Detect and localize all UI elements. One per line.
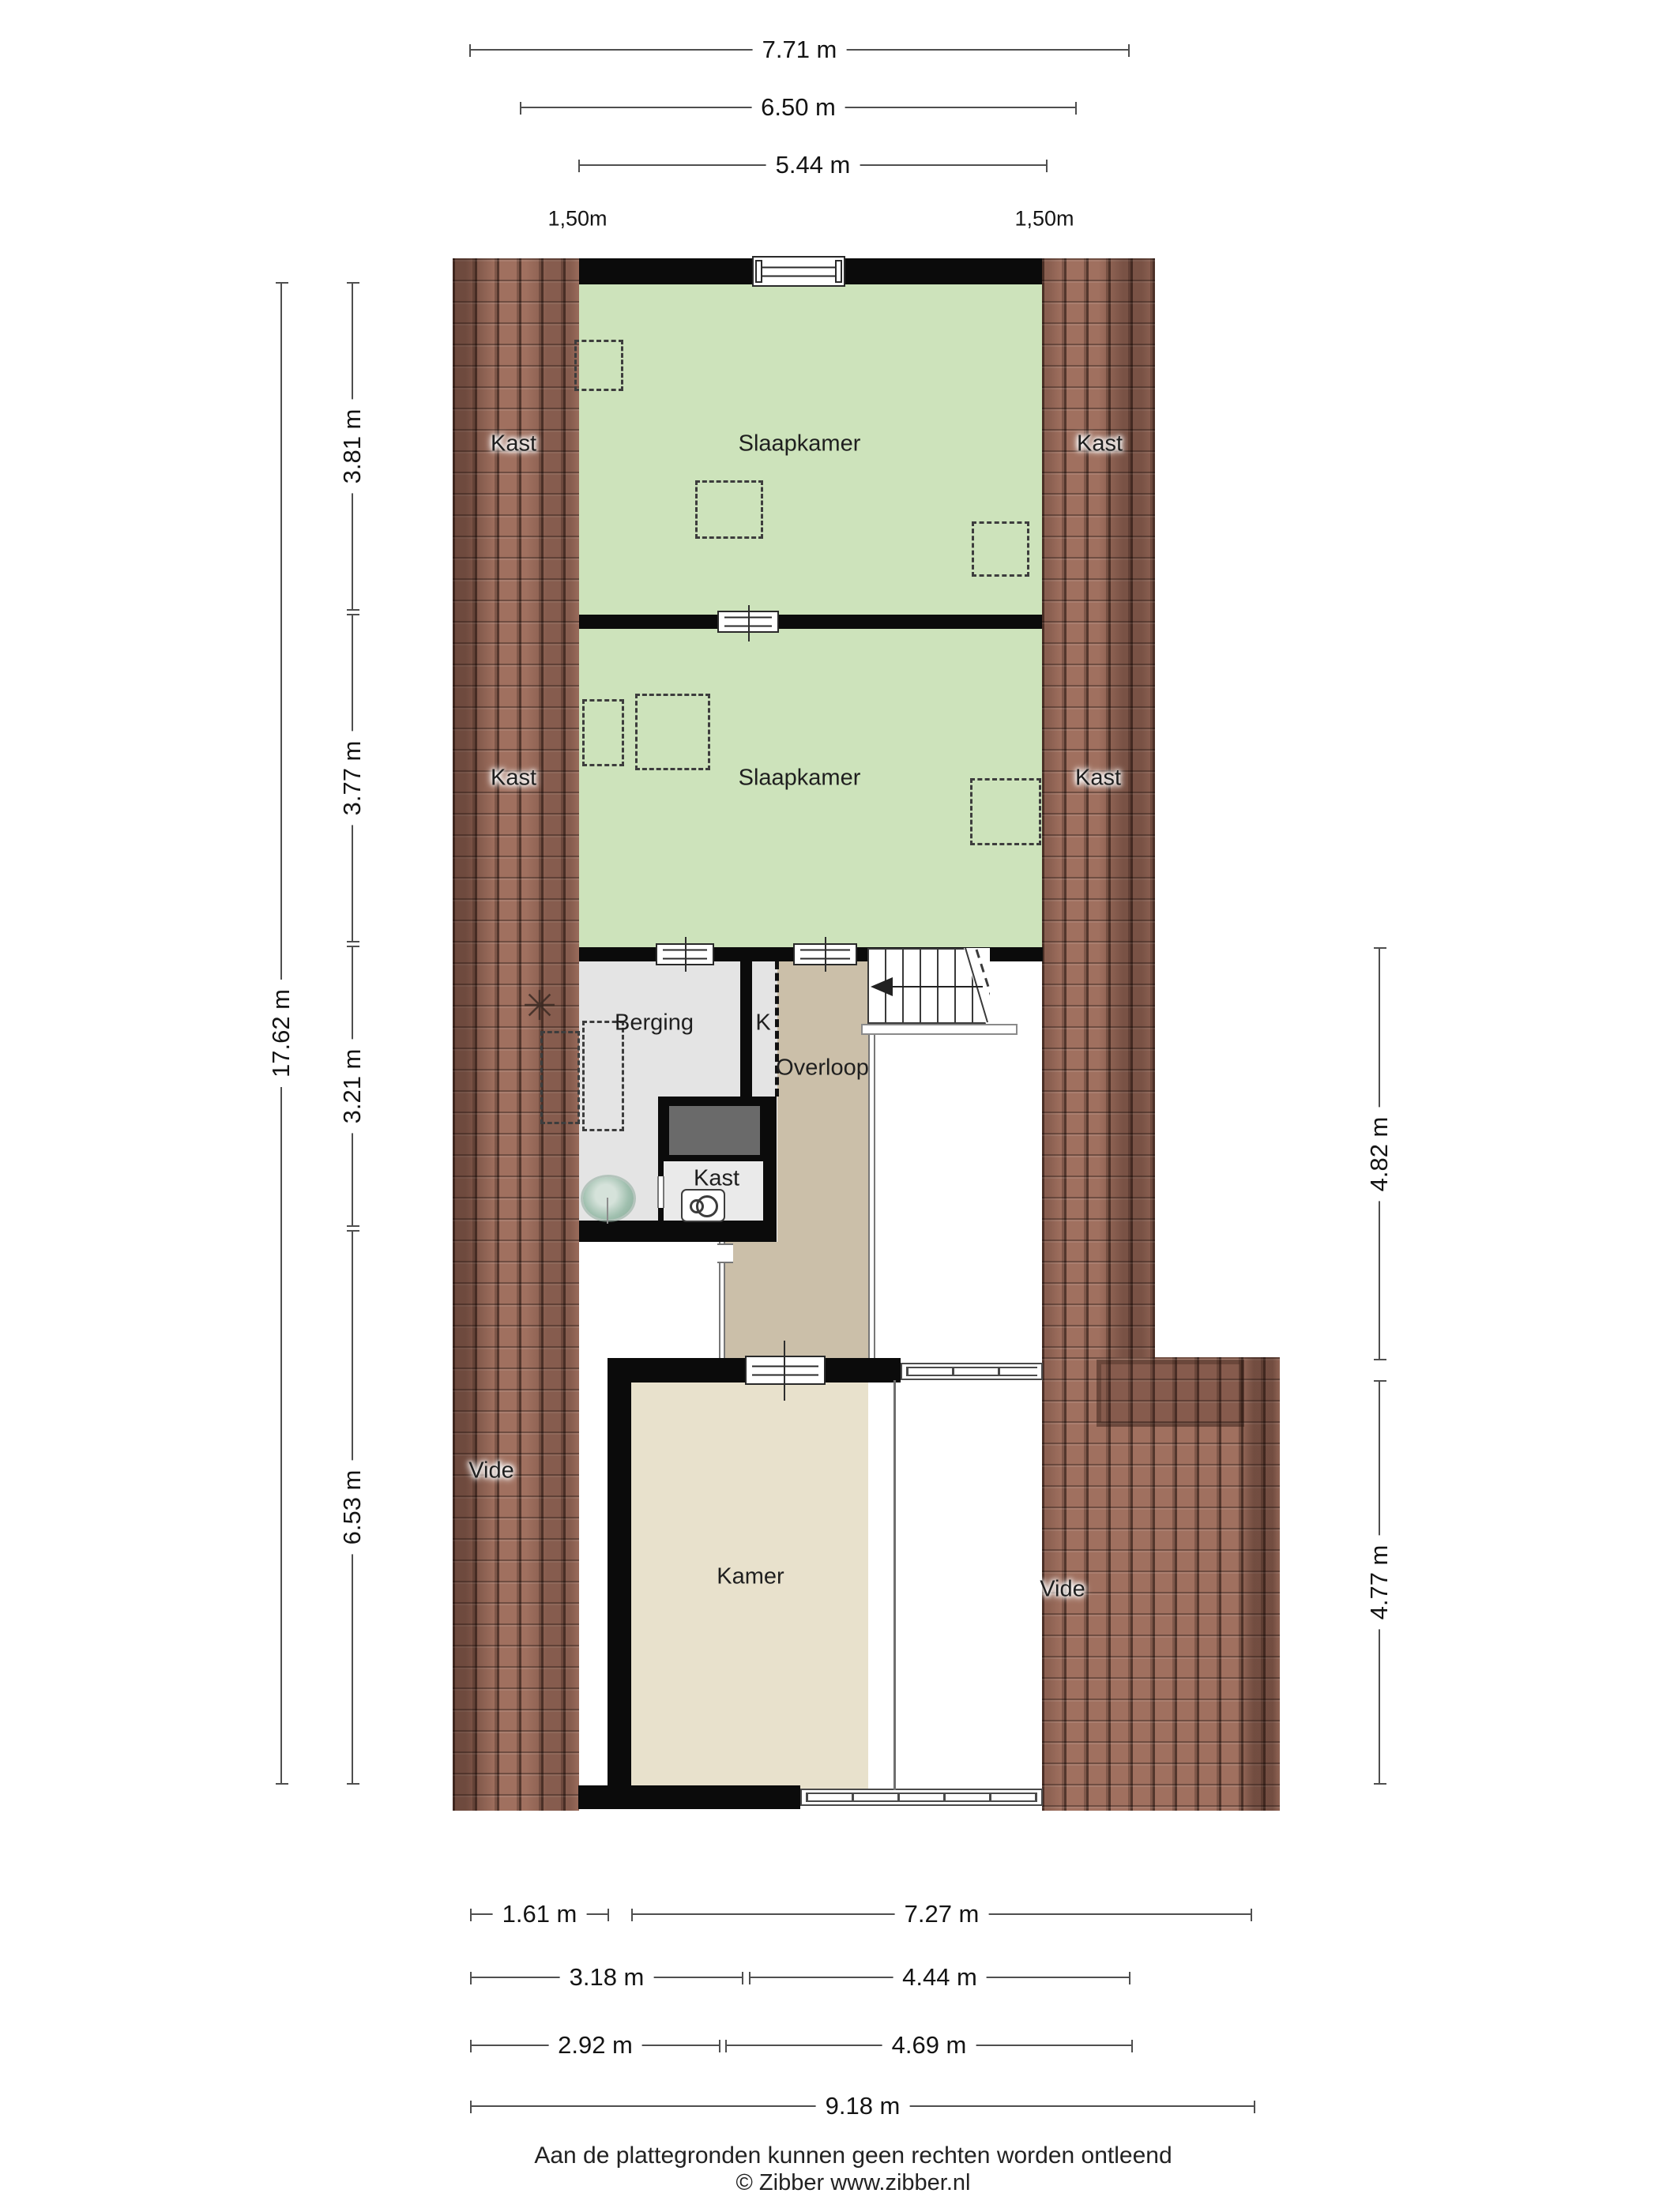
wall-between-bedrooms	[579, 615, 1042, 629]
furniture-dashed	[635, 694, 710, 770]
plant-stem	[607, 1198, 608, 1224]
dim-left-total: 17.62 m	[280, 283, 282, 1784]
wall-berging-k	[740, 961, 752, 1097]
label-berging: Berging	[615, 1010, 694, 1036]
dim-bottom-161: 1.61 m	[471, 1913, 608, 1915]
railing-segments	[806, 1793, 1037, 1802]
door-overloop	[717, 1243, 733, 1263]
dim-right-seg1: 4.82 m	[1379, 948, 1380, 1360]
furniture-dashed	[582, 699, 624, 766]
railing-segments	[906, 1367, 1037, 1376]
railing-vide-bottom	[800, 1789, 1043, 1806]
furniture-dashed	[695, 480, 763, 539]
stairs-landing-shelf	[861, 1024, 1018, 1035]
window-cap	[835, 260, 842, 283]
roof-shading	[1042, 258, 1155, 1357]
label-kast-mid-right: Kast	[1075, 766, 1121, 792]
dim-left-seg3: 3.21 m	[352, 946, 353, 1226]
window-cap	[755, 260, 762, 283]
roof-strip-right-upper	[1042, 258, 1155, 1357]
window-glass	[752, 1365, 818, 1375]
fixture-dark-panel	[669, 1106, 760, 1155]
label-vide-left: Vide	[468, 1458, 514, 1484]
label-overloop: Overloop	[776, 1055, 869, 1082]
floorplan: ✳ Slaapkamer Slaapkamer Kast Kast Kast K…	[0, 0, 1659, 2212]
footer-credit: © Zibber www.zibber.nl	[736, 2170, 971, 2196]
dim-offset-right: 1,50m	[1014, 207, 1074, 231]
label-kast-small: Kast	[694, 1166, 739, 1192]
dim-bottom-444: 4.44 m	[750, 1977, 1130, 1978]
wall-berging-bottom	[579, 1221, 777, 1242]
furniture-dashed	[540, 1031, 580, 1124]
washing-machine-icon	[681, 1189, 725, 1222]
label-k-closet: K	[755, 1010, 770, 1036]
door-tick	[685, 937, 687, 972]
partition-overloop-right	[868, 1024, 875, 1358]
plant-icon	[583, 1177, 634, 1220]
dim-top-771: 7.71 m	[470, 49, 1129, 51]
dim-bottom-727: 7.27 m	[632, 1913, 1251, 1915]
railing-vide-top	[901, 1363, 1043, 1380]
label-kast-top-left: Kast	[491, 431, 536, 457]
stairs-arrow-icon	[871, 977, 893, 996]
door-tick	[784, 1341, 785, 1401]
room-overloop-upper	[777, 961, 867, 1027]
dim-left-seg1: 3.81 m	[352, 283, 353, 610]
label-slaapkamer-top: Slaapkamer	[739, 431, 861, 457]
wall-kamer-left	[608, 1382, 631, 1785]
dim-top-544: 5.44 m	[579, 164, 1047, 166]
dim-left-seg2: 3.77 m	[352, 615, 353, 942]
dim-bottom-469: 4.69 m	[726, 2045, 1132, 2046]
door-tick	[748, 605, 750, 641]
dim-right-seg2: 4.77 m	[1379, 1381, 1380, 1784]
window-top	[752, 256, 845, 287]
dim-bottom-918: 9.18 m	[471, 2105, 1255, 2107]
staircase-detail	[867, 948, 990, 1024]
label-vide-right: Vide	[1040, 1577, 1085, 1603]
dim-offset-left: 1,50m	[547, 207, 607, 231]
label-kamer: Kamer	[717, 1564, 784, 1590]
furniture-dashed	[970, 778, 1041, 845]
door-tick	[825, 937, 826, 972]
window-kamer-door	[745, 1356, 826, 1385]
wall-kast-right	[763, 1161, 777, 1221]
wall-bottom	[578, 1785, 800, 1809]
staircase	[867, 948, 990, 1024]
label-slaapkamer-mid: Slaapkamer	[739, 766, 861, 792]
vide-edge-line	[893, 1380, 896, 1790]
label-kast-mid-left: Kast	[491, 766, 536, 792]
label-kast-top-right: Kast	[1077, 431, 1123, 457]
dim-bottom-318: 3.18 m	[471, 1977, 743, 1978]
dim-bottom-292: 2.92 m	[471, 2045, 720, 2046]
furniture-dashed	[972, 521, 1029, 577]
room-overloop-lower	[724, 1242, 868, 1358]
dim-left-seg4: 6.53 m	[352, 1231, 353, 1784]
footer-disclaimer: Aan de plattegronden kunnen geen rechten…	[534, 2142, 1172, 2169]
window-glass	[759, 266, 838, 276]
star-icon: ✳	[522, 983, 557, 1030]
furniture-dashed	[574, 340, 623, 391]
dim-top-650: 6.50 m	[521, 107, 1076, 108]
roof-inset-panel	[1097, 1360, 1244, 1427]
door-kast-small	[657, 1176, 664, 1208]
furniture-dashed	[582, 1021, 624, 1131]
